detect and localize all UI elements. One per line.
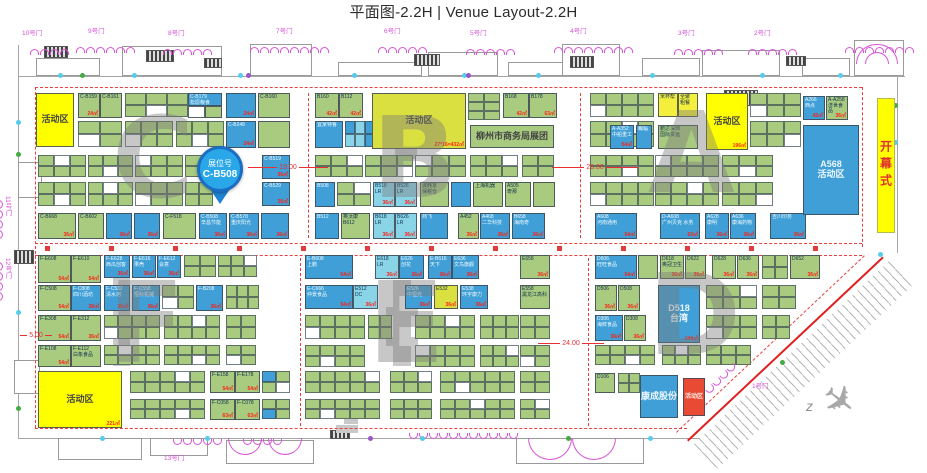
booth-柳州市商务局展团[interactable]: 柳州市商务局展团 (470, 125, 554, 148)
booth-cell[interactable] (70, 194, 86, 206)
booth-cell[interactable] (535, 327, 550, 339)
booth-cell[interactable] (622, 105, 638, 117)
booth-cell[interactable] (160, 399, 175, 409)
booth-cell[interactable] (145, 399, 160, 409)
booth-cell[interactable] (506, 345, 519, 356)
booth-cell[interactable] (365, 399, 380, 409)
booth-cell[interactable] (775, 267, 788, 279)
booth-F-E108[interactable]: F-E10854㎡ (38, 345, 71, 367)
booth-cell[interactable] (244, 255, 257, 266)
booth-F-C508[interactable]: F-C50854㎡ (38, 285, 71, 311)
booth-cell[interactable] (130, 409, 145, 419)
booth-cell[interactable] (262, 399, 276, 409)
booth-cell[interactable] (208, 121, 224, 134)
booth-cell[interactable] (485, 371, 500, 382)
booth-cell[interactable] (522, 166, 538, 177)
booth-cell[interactable] (184, 266, 200, 277)
booth-cell[interactable] (335, 371, 350, 382)
booth-cell[interactable] (762, 267, 775, 279)
booth-cell[interactable] (767, 121, 784, 134)
booth-cell[interactable] (231, 255, 244, 266)
booth-cell[interactable] (70, 182, 86, 194)
booth-cell[interactable] (320, 399, 335, 409)
booth-cell[interactable] (440, 399, 455, 409)
booth-C-B529[interactable]: C-B52936㎡ (262, 182, 290, 206)
booth-cell[interactable] (445, 356, 460, 367)
booth-cell[interactable] (762, 315, 776, 327)
booth-cell[interactable] (305, 356, 320, 367)
booth-cell[interactable] (350, 345, 365, 356)
booth-cell[interactable] (276, 371, 290, 382)
booth-cell[interactable] (54, 166, 70, 177)
booth-cell[interactable] (226, 285, 237, 297)
booth-cell[interactable] (455, 382, 470, 393)
booth-D308[interactable]: D30836㎡ (624, 315, 646, 341)
booth-cell[interactable] (460, 356, 475, 367)
booth-cell[interactable] (145, 409, 160, 419)
booth-cell[interactable] (739, 194, 756, 206)
booth-cell[interactable] (493, 345, 506, 356)
booth-cell[interactable] (190, 409, 205, 419)
booth-cell[interactable] (184, 255, 200, 266)
booth-cell[interactable] (331, 166, 347, 177)
booth-cell[interactable] (226, 355, 241, 365)
booth-cell[interactable] (337, 194, 354, 206)
booth-cell[interactable] (756, 155, 773, 166)
booth-cell[interactable] (190, 371, 205, 382)
booth-D652[interactable]: D65236㎡ (790, 255, 820, 279)
booth-cell[interactable] (345, 134, 355, 147)
booth-cell[interactable] (520, 409, 535, 419)
booth-cell[interactable] (241, 345, 256, 355)
booth-cell[interactable] (784, 105, 801, 117)
booth-cell[interactable] (88, 166, 103, 177)
booth-cell[interactable] (776, 315, 790, 327)
booth-cell[interactable] (350, 371, 365, 382)
booth-cell[interactable] (590, 194, 606, 206)
booth-cell[interactable] (740, 315, 757, 327)
booth-cell[interactable] (506, 327, 519, 339)
booth-cell[interactable] (535, 399, 550, 409)
booth-cell[interactable] (767, 93, 784, 105)
booth-cell[interactable] (590, 134, 606, 147)
booth-cell[interactable] (756, 182, 773, 194)
booth-cell[interactable] (520, 382, 535, 393)
booth-cell[interactable] (595, 355, 610, 365)
booth-cell[interactable] (460, 315, 475, 327)
booth-cell[interactable] (237, 285, 248, 297)
booth-E558[interactable]: E558黑龙江高科 (520, 285, 550, 309)
booth-cell[interactable] (484, 111, 500, 120)
booth-cell[interactable] (262, 382, 276, 393)
booth-B168[interactable]: B16842㎡ (503, 93, 529, 118)
booth-F-E610[interactable]: F-E61054㎡ (71, 255, 101, 283)
booth-cell[interactable] (455, 409, 470, 419)
booth-cell[interactable] (347, 166, 363, 177)
booth-cell[interactable] (740, 285, 757, 297)
booth-cell[interactable] (78, 121, 100, 134)
booth[interactable] (533, 182, 555, 207)
booth-cell[interactable] (305, 409, 320, 419)
booth-cell[interactable] (520, 371, 535, 382)
booth-cell[interactable] (610, 345, 625, 355)
booth-cell[interactable] (335, 409, 350, 419)
booth-活动区[interactable]: 活动区 (683, 378, 705, 416)
booth-cell[interactable] (618, 373, 629, 383)
booth-A-A258[interactable]: A-A258济世食品36㎡ (826, 96, 848, 120)
booth-cell[interactable] (762, 327, 776, 339)
booth-E658[interactable]: E65836㎡ (520, 255, 550, 279)
booth-location-pin[interactable]: 展位号 C-B508 (197, 146, 243, 192)
booth-A505[interactable]: A505奇那 (505, 182, 531, 207)
booth-cell[interactable] (418, 399, 432, 409)
booth-cell[interactable] (470, 166, 486, 177)
booth-cell[interactable] (468, 93, 484, 102)
booth-cell[interactable] (485, 399, 500, 409)
booth-cell[interactable] (335, 345, 350, 356)
booth-C-B159[interactable]: C-B15924㎡ (78, 93, 100, 118)
booth-cell[interactable] (192, 327, 206, 339)
booth-B512[interactable]: B512 (315, 213, 339, 239)
booth-cell[interactable] (70, 166, 86, 177)
booth-cell[interactable] (590, 182, 606, 194)
booth-cell[interactable] (206, 355, 220, 365)
booth-cell[interactable] (355, 134, 365, 147)
booth-cell[interactable] (237, 297, 248, 309)
booth-cell[interactable] (445, 345, 460, 356)
booth-F-B208[interactable]: F-B20836㎡ (196, 285, 223, 311)
booth-cell[interactable] (590, 105, 606, 117)
booth-F-C078[interactable]: F-C07863㎡ (235, 399, 260, 420)
booth-cell[interactable] (241, 355, 256, 365)
booth-cell[interactable] (484, 102, 500, 111)
booth-F-E608[interactable]: F-E60854㎡ (38, 255, 71, 283)
booth-cell[interactable] (355, 121, 365, 134)
booth-A608[interactable]: A608河南通用54㎡ (595, 213, 637, 239)
booth-cell[interactable] (468, 102, 484, 111)
booth-cell[interactable] (335, 315, 350, 327)
booth-cell[interactable] (535, 371, 550, 382)
booth-cell[interactable] (739, 182, 756, 194)
booth-cell[interactable] (535, 356, 550, 367)
booth-cell[interactable] (606, 194, 622, 206)
booth-cell[interactable] (206, 327, 220, 339)
booth-cell[interactable] (502, 155, 518, 166)
booth-A-A352[interactable]: A-A352中船重工54㎡ (610, 125, 634, 149)
booth-cell[interactable] (535, 315, 550, 327)
booth-cell[interactable] (218, 255, 231, 266)
booth-宜家特鲁[interactable]: 宜家特鲁 (315, 121, 343, 148)
booth-cell[interactable] (276, 399, 290, 409)
booth-cell[interactable] (739, 155, 756, 166)
booth-B508[interactable]: B508 (315, 182, 335, 207)
booth-F-C808[interactable]: F-C808四川酒坊36㎡ (71, 285, 101, 311)
booth-cell[interactable] (390, 399, 404, 409)
booth-cell[interactable] (78, 134, 100, 147)
booth-cell[interactable] (200, 266, 216, 277)
booth-cell[interactable] (337, 182, 354, 194)
booth-D508[interactable]: D50836㎡ (618, 285, 640, 311)
booth-cell[interactable] (776, 327, 790, 339)
booth-cell[interactable] (470, 155, 486, 166)
booth-cell[interactable] (241, 327, 256, 339)
booth-cell[interactable] (740, 297, 757, 309)
booth-C-B160[interactable]: C-B160 (258, 93, 290, 118)
booth-cell[interactable] (226, 345, 241, 355)
booth-cell[interactable] (500, 371, 515, 382)
booth-cell[interactable] (350, 327, 365, 339)
booth-cell[interactable] (276, 382, 290, 393)
booth-E-C666[interactable]: E-C666仲景食品54㎡ (305, 285, 353, 309)
booth-cell[interactable] (305, 345, 320, 356)
booth-cell[interactable] (739, 166, 756, 177)
booth-cell[interactable] (335, 382, 350, 393)
booth-cell[interactable] (618, 383, 629, 393)
booth-cell[interactable] (629, 383, 640, 393)
booth-cell[interactable] (629, 373, 640, 383)
booth-cell[interactable] (206, 345, 220, 355)
booth-A266[interactable]: A266西点42㎡ (803, 96, 825, 120)
booth-cell[interactable] (480, 315, 493, 327)
booth-cell[interactable] (455, 371, 470, 382)
booth-cell[interactable] (784, 134, 801, 147)
booth-cell[interactable] (418, 409, 432, 419)
booth-cell[interactable] (276, 409, 290, 419)
booth-cell[interactable] (622, 182, 638, 194)
booth-cell[interactable] (192, 345, 206, 355)
booth-cell[interactable] (305, 399, 320, 409)
booth-F-C058[interactable]: F-C05863㎡ (210, 399, 235, 420)
booth-cell[interactable] (320, 409, 335, 419)
booth-cell[interactable] (440, 409, 455, 419)
booth-cell[interactable] (248, 297, 259, 309)
booth-cell[interactable] (262, 371, 276, 382)
booth-cell[interactable] (354, 182, 371, 194)
booth-cell[interactable] (350, 356, 365, 367)
booth-cell[interactable] (38, 182, 54, 194)
booth-cell[interactable] (767, 134, 784, 147)
booth-cell[interactable] (226, 315, 241, 327)
booth-B178[interactable]: B17863㎡ (529, 93, 557, 118)
booth-cell[interactable] (347, 155, 363, 166)
booth-cell[interactable] (331, 155, 347, 166)
booth-cell[interactable] (520, 356, 535, 367)
booth-cell[interactable] (335, 327, 350, 339)
booth-cell[interactable] (218, 266, 231, 277)
booth-F-E178[interactable]: F-E17854㎡ (235, 371, 260, 393)
booth-cell[interactable] (192, 121, 208, 134)
booth-cell[interactable] (320, 356, 335, 367)
booth-cell[interactable] (484, 93, 500, 102)
booth-E538[interactable]: E538环宇康力36㎡ (460, 285, 488, 309)
booth-吉川印务[interactable]: 吉川印务36㎡ (770, 213, 806, 239)
booth-cell[interactable] (590, 121, 606, 134)
booth-cell[interactable] (206, 315, 220, 327)
booth-cell[interactable] (320, 315, 335, 327)
booth-cell[interactable] (506, 315, 519, 327)
booth-cell[interactable] (350, 399, 365, 409)
booth-cell[interactable] (590, 93, 606, 105)
booth-cell[interactable] (404, 399, 418, 409)
booth-cell[interactable] (190, 399, 205, 409)
booth-cell[interactable] (54, 194, 70, 206)
booth[interactable]: 36㎡ (261, 213, 289, 239)
booth-cell[interactable] (350, 315, 365, 327)
booth-cell[interactable] (762, 297, 779, 309)
booth-cell[interactable] (775, 255, 788, 267)
booth-cell[interactable] (606, 182, 622, 194)
booth-cell[interactable] (200, 255, 216, 266)
booth-cell[interactable] (520, 315, 535, 327)
booth-C-B578[interactable]: C-B578重庆阳光36㎡ (229, 213, 259, 239)
booth-cell[interactable] (500, 382, 515, 393)
booth-cell[interactable] (354, 194, 371, 206)
booth-cell[interactable] (208, 134, 224, 147)
booth-cell[interactable] (88, 182, 103, 194)
booth-F-E158[interactable]: F-E15854㎡ (210, 371, 235, 393)
booth-cell[interactable] (390, 409, 404, 419)
booth-cell[interactable] (244, 266, 257, 277)
booth-cell[interactable] (231, 266, 244, 277)
booth-cell[interactable] (470, 382, 485, 393)
booth-cell[interactable] (192, 355, 206, 365)
booth-cell[interactable] (535, 382, 550, 393)
booth-cell[interactable] (70, 155, 86, 166)
booth-cell[interactable] (305, 315, 320, 327)
booth-cell[interactable] (779, 297, 796, 309)
booth-cell[interactable] (190, 382, 205, 393)
booth-cell[interactable] (740, 327, 757, 339)
booth-cell[interactable] (622, 194, 638, 206)
booth-A468[interactable]: A468二华科技36㎡ (480, 213, 510, 239)
booth-cell[interactable] (762, 285, 779, 297)
booth-cell[interactable] (460, 327, 475, 339)
booth-cell[interactable] (520, 345, 535, 356)
booth-cell[interactable] (750, 105, 767, 117)
booth-cell[interactable] (470, 409, 485, 419)
booth-cell[interactable] (320, 382, 335, 393)
booth-cell[interactable] (445, 327, 460, 339)
booth-cell[interactable] (500, 399, 515, 409)
booth-cell[interactable] (460, 345, 475, 356)
booth-B658[interactable]: B658海南奇36㎡ (512, 213, 545, 239)
booth-D306[interactable]: D306海鲜食品36㎡ (595, 315, 623, 341)
booth-cell[interactable] (445, 315, 460, 327)
booth-cell[interactable] (606, 105, 622, 117)
booth-cell[interactable] (480, 356, 493, 367)
booth-cell[interactable] (160, 409, 175, 419)
booth-cell[interactable] (493, 356, 506, 367)
booth-cell[interactable] (54, 155, 70, 166)
booth-cell[interactable] (480, 327, 493, 339)
booth-D506[interactable]: D50636㎡ (595, 285, 617, 311)
booth-cell[interactable] (480, 345, 493, 356)
booth-cell[interactable] (455, 399, 470, 409)
booth[interactable] (258, 121, 290, 148)
booth-cell[interactable] (486, 155, 502, 166)
booth-C-B668[interactable]: C-B66836㎡ (38, 213, 76, 239)
booth-cell[interactable] (750, 121, 767, 134)
booth-cell[interactable] (404, 409, 418, 419)
booth-cell[interactable] (175, 409, 190, 419)
booth-cell[interactable] (38, 194, 54, 206)
booth-cell[interactable] (520, 399, 535, 409)
booth-cell[interactable] (486, 166, 502, 177)
booth-cell[interactable] (192, 134, 208, 147)
booth-cell[interactable] (470, 399, 485, 409)
booth-cell[interactable] (335, 399, 350, 409)
booth-cell[interactable] (784, 121, 801, 134)
booth-cell[interactable] (622, 93, 638, 105)
booth-C-B248[interactable]: C-B24824㎡ (226, 121, 256, 148)
booth-奥汰康[interactable]: 奥汰康B612 (341, 213, 370, 239)
booth-B160[interactable]: B16042㎡ (315, 93, 339, 118)
booth-活动区[interactable]: 活动区 (36, 93, 74, 147)
booth-cell[interactable] (756, 166, 773, 177)
booth-cell[interactable] (500, 409, 515, 419)
booth-cell[interactable] (305, 371, 320, 382)
booth-cell[interactable] (320, 345, 335, 356)
booth-cell[interactable] (756, 194, 773, 206)
booth-cell[interactable] (493, 327, 506, 339)
booth[interactable] (205, 106, 222, 118)
booth-A568[interactable]: A568活动区 (803, 125, 859, 215)
booth-cell[interactable] (520, 327, 535, 339)
booth[interactable]: 24㎡ (226, 93, 256, 118)
booth-B112[interactable]: B11242㎡ (339, 93, 363, 118)
booth-cell[interactable] (493, 315, 506, 327)
booth-cell[interactable] (248, 285, 259, 297)
booth-cell[interactable] (38, 155, 54, 166)
booth-cell[interactable] (468, 111, 484, 120)
booth-cell[interactable] (320, 371, 335, 382)
booth-cell[interactable] (365, 409, 380, 419)
booth-F-E112[interactable]: F-E112白象食品 (71, 345, 101, 367)
booth-cell[interactable] (88, 155, 103, 166)
booth-C-B602[interactable]: C-B602 (78, 213, 104, 239)
booth-cell[interactable] (625, 345, 640, 355)
booth-cell[interactable] (175, 399, 190, 409)
booth-cell[interactable] (350, 382, 365, 393)
booth-cell[interactable] (625, 355, 640, 365)
booth-cell[interactable] (335, 356, 350, 367)
booth-cell[interactable] (485, 409, 500, 419)
booth-cell[interactable] (750, 134, 767, 147)
booth-E-B608[interactable]: E-B608上鹏54㎡ (305, 255, 353, 279)
booth-cell[interactable] (762, 255, 775, 267)
booth-上海机器[interactable]: 上海机器 (473, 182, 503, 207)
booth-cell[interactable] (192, 315, 206, 327)
booth-cell[interactable] (38, 166, 54, 177)
booth-cell[interactable] (610, 355, 625, 365)
booth-康成股份[interactable]: 康成股份 (640, 375, 678, 418)
booth-C-B508[interactable]: C-B508辛昌节能36㎡ (199, 213, 227, 239)
booth-cell[interactable] (226, 327, 241, 339)
booth-cell[interactable] (241, 315, 256, 327)
booth-cell[interactable] (305, 327, 320, 339)
booth-cell[interactable] (750, 93, 767, 105)
booth-cell[interactable] (502, 166, 518, 177)
booth-D106[interactable]: D106 (595, 373, 615, 393)
booth-cell[interactable] (779, 285, 796, 297)
booth-cell[interactable] (88, 194, 103, 206)
booth-E636[interactable]: E636文鸟旗舰36㎡ (452, 255, 479, 279)
booth-A452[interactable]: A45236㎡ (458, 213, 479, 239)
booth-cell[interactable] (506, 356, 519, 367)
booth-cell[interactable] (784, 93, 801, 105)
booth-F-E312[interactable]: F-E31236㎡ (71, 315, 101, 341)
booth-cell[interactable] (522, 155, 538, 166)
